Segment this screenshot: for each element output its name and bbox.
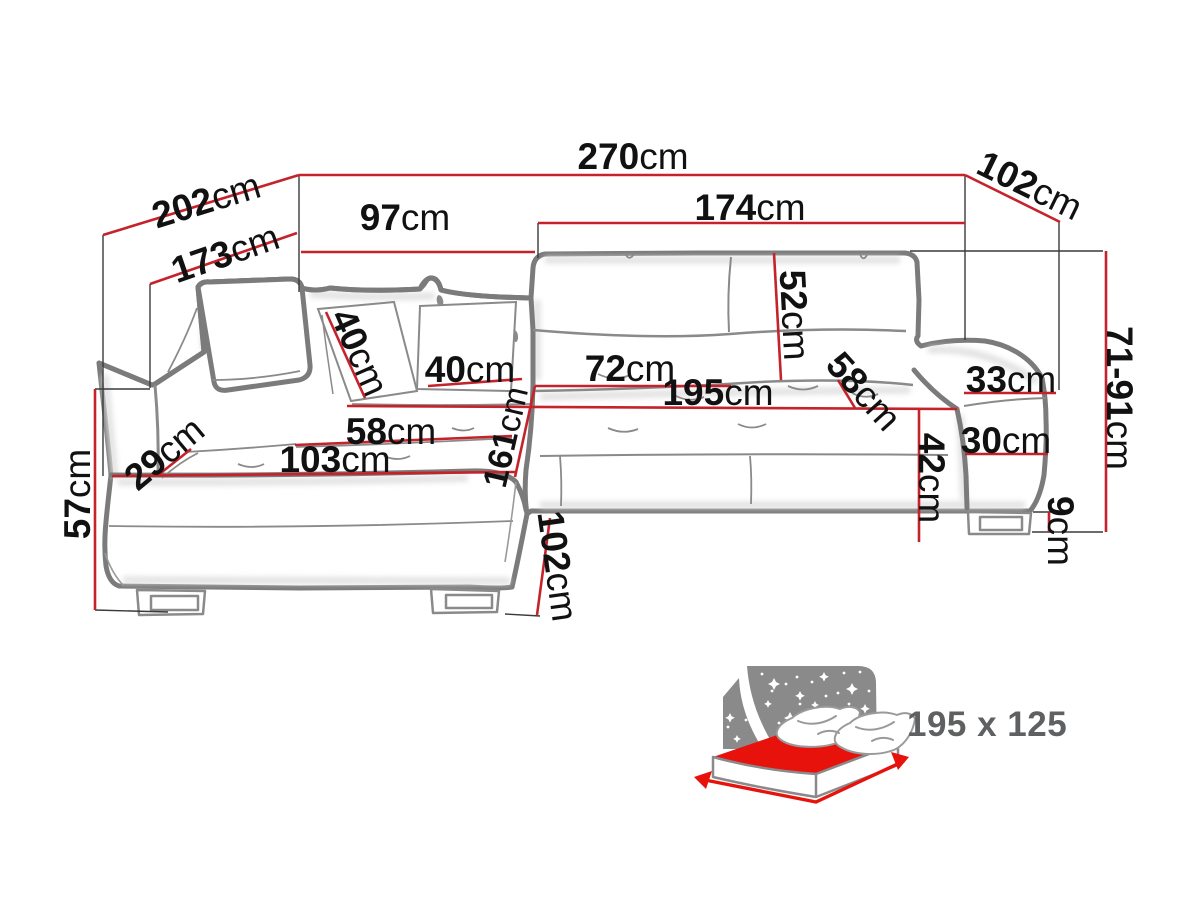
svg-text:97cm: 97cm — [360, 197, 450, 238]
svg-text:57cm: 57cm — [57, 449, 98, 539]
svg-text:195 x 125: 195 x 125 — [907, 705, 1067, 744]
svg-text:58cm: 58cm — [346, 411, 436, 452]
svg-text:52cm: 52cm — [772, 269, 818, 362]
svg-text:195cm: 195cm — [662, 372, 773, 413]
svg-text:42cm: 42cm — [912, 433, 953, 523]
svg-text:174cm: 174cm — [694, 187, 805, 228]
svg-text:40cm: 40cm — [425, 349, 515, 390]
svg-text:270cm: 270cm — [577, 136, 688, 177]
svg-text:9cm: 9cm — [1041, 496, 1082, 566]
svg-text:71-91cm: 71-91cm — [1100, 326, 1141, 470]
svg-text:33cm: 33cm — [966, 359, 1056, 400]
svg-text:30cm: 30cm — [961, 420, 1051, 461]
